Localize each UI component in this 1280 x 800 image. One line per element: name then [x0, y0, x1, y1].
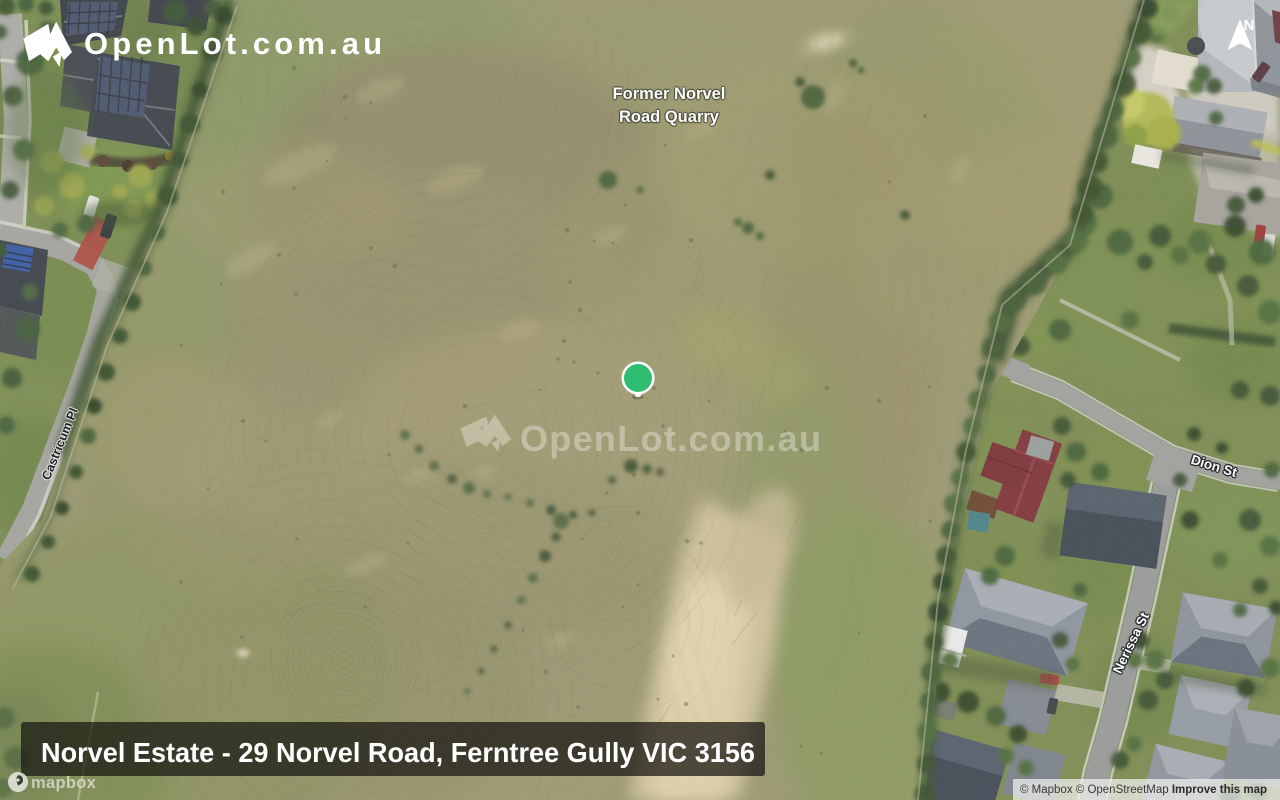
svg-text:OpenLot.com.au: OpenLot.com.au	[520, 418, 821, 459]
svg-text:© Mapbox © OpenStreetMap Impro: © Mapbox © OpenStreetMap Improve this ma…	[1020, 784, 1267, 796]
svg-text:N: N	[1244, 17, 1255, 34]
svg-text:mapbox: mapbox	[31, 774, 97, 792]
svg-text:OpenLot.com.au: OpenLot.com.au	[84, 26, 382, 61]
svg-text:Norvel Estate - 29 Norvel Road: Norvel Estate - 29 Norvel Road, Ferntree…	[41, 737, 755, 768]
svg-text:Former Norvel: Former Norvel	[613, 85, 726, 103]
svg-text:Road Quarry: Road Quarry	[619, 108, 720, 126]
